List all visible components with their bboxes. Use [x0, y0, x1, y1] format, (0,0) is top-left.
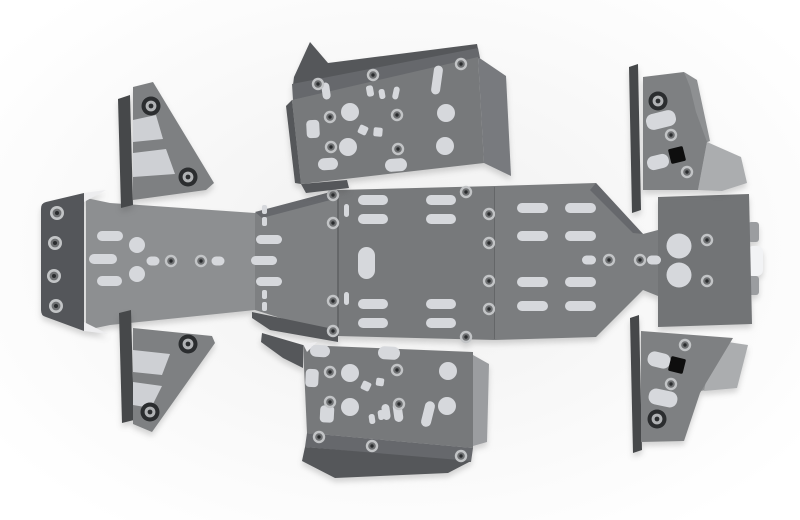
a-arm-guard-top-left	[118, 82, 214, 208]
rear-skid-plate	[658, 194, 763, 327]
side-plate-top	[286, 42, 511, 193]
skid-plate-kit-render	[0, 0, 800, 520]
main-skid-assembly	[41, 183, 763, 343]
center-skid-plate	[327, 186, 495, 343]
footwell-guard-top-right	[629, 64, 747, 213]
front-skid-plate	[86, 198, 255, 330]
side-plate-bottom	[261, 333, 489, 478]
transition-plate	[251, 190, 338, 342]
render-canvas	[0, 0, 800, 520]
footwell-guard-bottom-right	[630, 315, 748, 453]
a-arm-guard-bottom-left	[119, 310, 215, 432]
